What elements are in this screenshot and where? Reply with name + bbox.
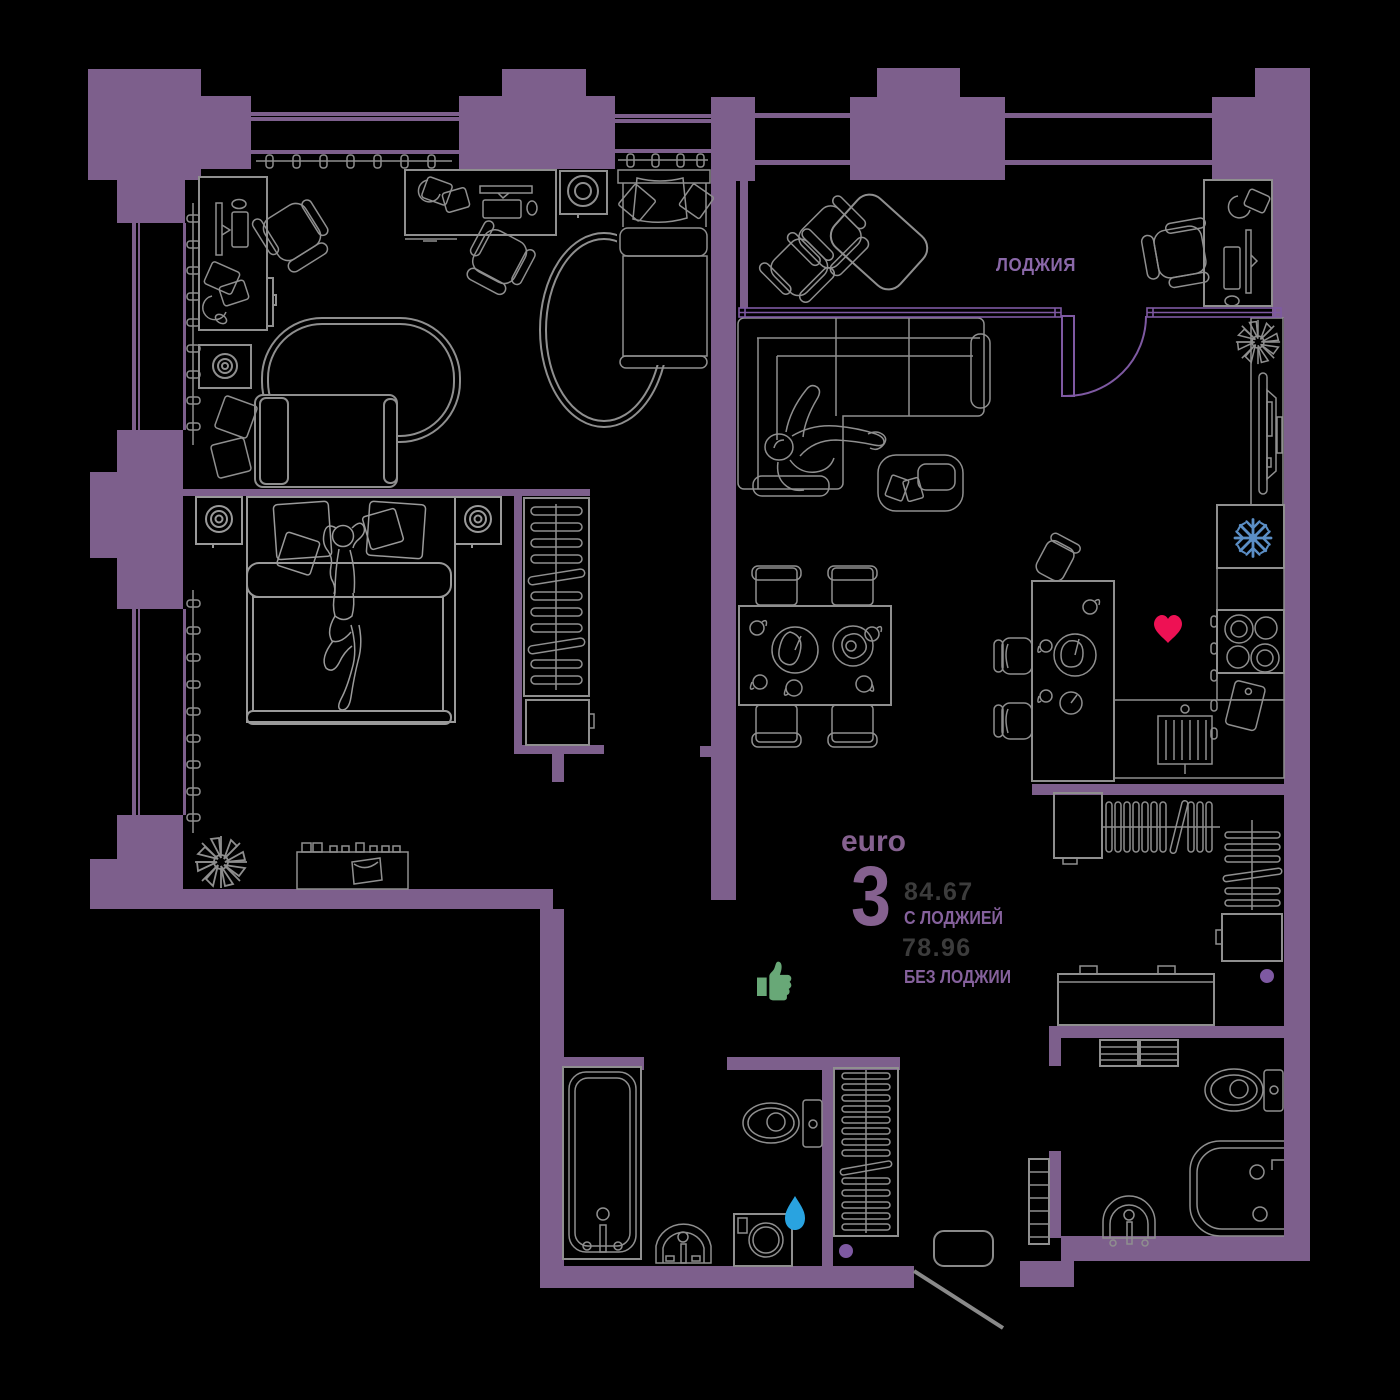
svg-text:84.67: 84.67: [904, 878, 974, 906]
svg-text:БЕЗ ЛОДЖИИ: БЕЗ ЛОДЖИИ: [904, 967, 1011, 987]
svg-text:С ЛОДЖИЕЙ: С ЛОДЖИЕЙ: [904, 907, 1003, 928]
svg-text:ЛОДЖИЯ: ЛОДЖИЯ: [996, 255, 1076, 275]
svg-text:3: 3: [851, 849, 891, 943]
svg-text:78.96: 78.96: [902, 934, 972, 962]
